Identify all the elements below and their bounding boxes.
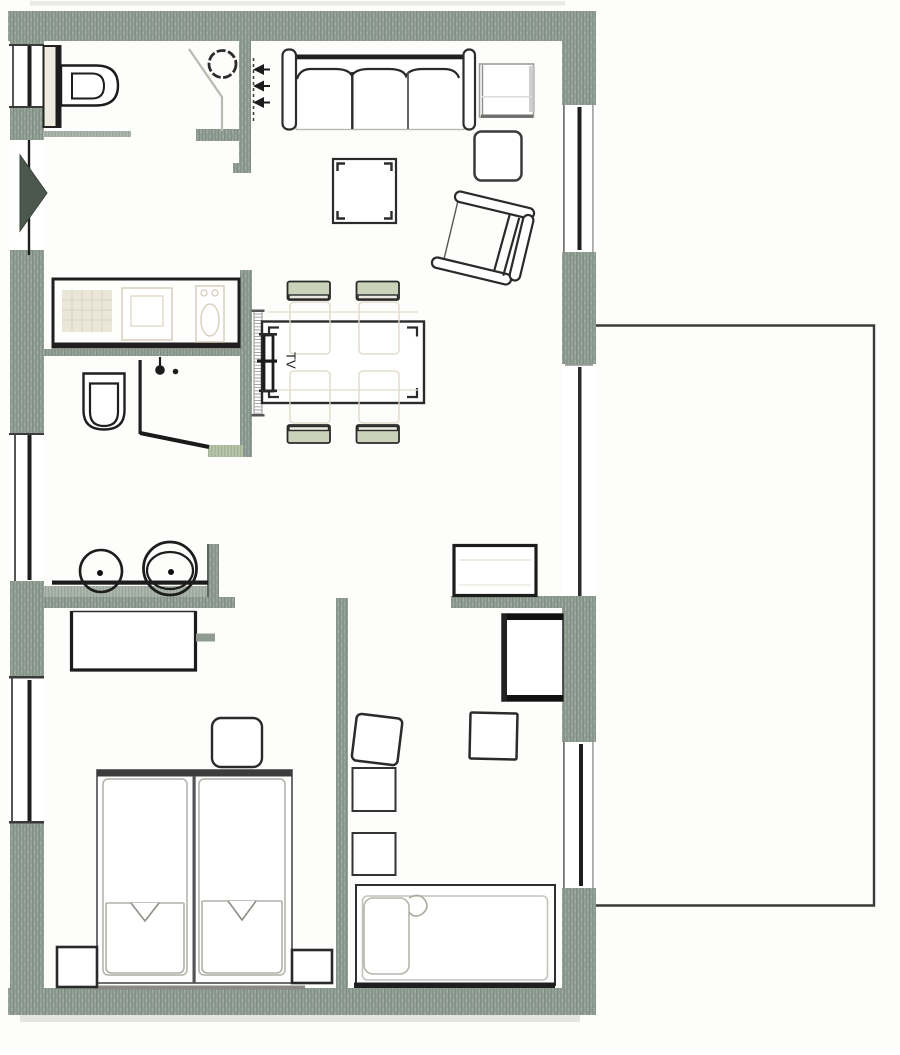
svg-text:TV: TV xyxy=(284,352,299,369)
